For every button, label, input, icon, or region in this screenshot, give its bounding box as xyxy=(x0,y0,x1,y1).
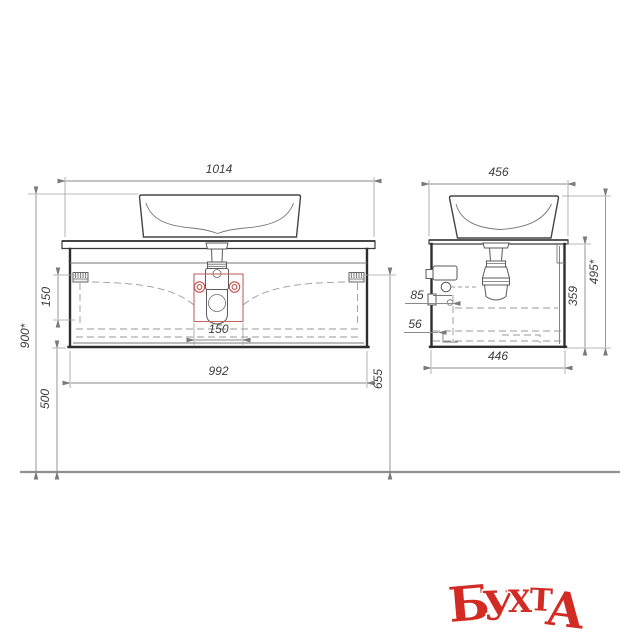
side-drawer-hidden-lines xyxy=(433,295,562,343)
side-view: 456 495* 359 446 85 56 xyxy=(404,165,611,374)
bracket-wall-plate xyxy=(426,270,433,279)
dim-text-back-lower: 56 xyxy=(408,317,422,331)
dim-text-hang-offset: 150 xyxy=(39,287,53,307)
dim-text-bottom-width: 992 xyxy=(208,364,228,378)
siphon-cone xyxy=(483,267,510,278)
siphon-bottle xyxy=(485,285,508,300)
dim-text-back-upper: 85 xyxy=(410,288,424,302)
drawer-dashed-lines xyxy=(433,295,562,343)
siphon-tee-body xyxy=(206,269,229,290)
drain-tailpipe xyxy=(212,249,223,262)
dim-text-top-depth: 456 xyxy=(488,165,508,179)
front-sink xyxy=(140,195,301,237)
bracket-screw xyxy=(447,300,453,306)
technical-drawing-canvas: 1014 900* 150 500 150 992 655 xyxy=(0,0,640,640)
dim-text-overall-height: 900* xyxy=(18,323,32,348)
side-sink xyxy=(450,196,559,238)
side-siphon xyxy=(483,243,510,300)
front-bracket-left xyxy=(73,273,88,283)
dim-text-bracket-to-floor: 655 xyxy=(371,369,385,389)
ext-lines-150-left xyxy=(53,275,75,320)
drain-nut xyxy=(487,261,506,267)
siphon-right-wingnut-inner xyxy=(232,285,237,290)
drain-flange xyxy=(206,243,228,249)
dim-text-top-width: 1014 xyxy=(206,162,233,176)
drawer-solid-details xyxy=(433,296,458,343)
drain-flange xyxy=(483,243,509,248)
dim-text-cutout-width: 150 xyxy=(208,322,228,336)
watermark-letter: А xyxy=(543,580,589,640)
dim-text-floor-clearance: 500 xyxy=(38,389,52,409)
drain-nut xyxy=(208,262,227,269)
dim-text-cabinet-height: 359 xyxy=(566,286,580,306)
technical-drawing-page: 1014 900* 150 500 150 992 655 xyxy=(0,0,640,640)
sink-outline xyxy=(140,195,301,237)
siphon-left-wingnut-inner xyxy=(197,285,202,290)
bracket-adjuster-circle xyxy=(441,282,451,292)
dim-text-bottom-depth: 446 xyxy=(488,349,508,363)
front-siphon xyxy=(194,243,243,324)
watermark-logo: Б У Х Т А xyxy=(446,575,588,640)
dim-text-side-overall-height: 495* xyxy=(587,259,601,284)
side-wall-bracket xyxy=(426,266,478,305)
front-bracket-right xyxy=(349,273,364,283)
bracket-housing xyxy=(433,266,457,280)
sink-outline xyxy=(450,196,559,238)
drain-tailpipe xyxy=(490,248,503,261)
